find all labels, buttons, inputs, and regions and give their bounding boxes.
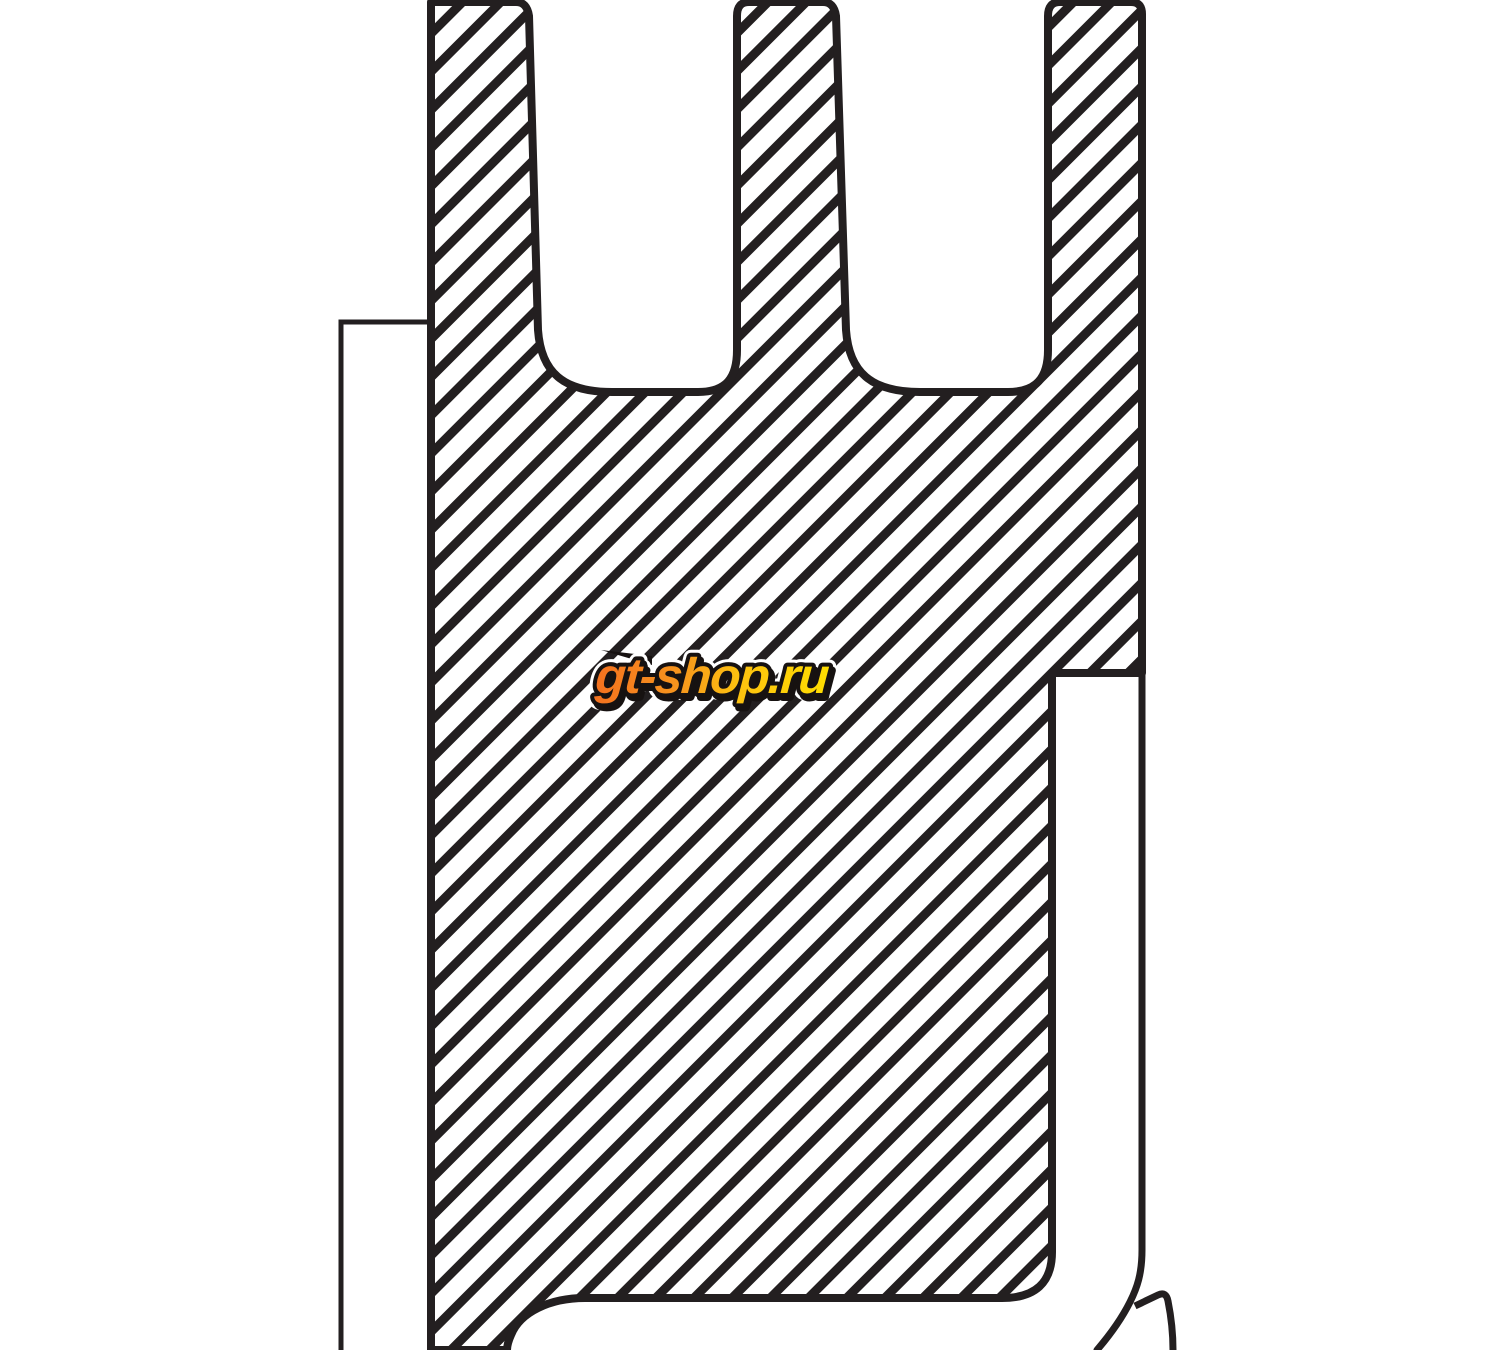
- watermark-text: gt-shop.ru gt-shop.ru gt-shop.ru gt-shop…: [593, 648, 834, 708]
- watermark: gt-shop.ru gt-shop.ru gt-shop.ru gt-shop…: [593, 648, 834, 708]
- seal-cross-section-drawing: gt-shop.ru gt-shop.ru gt-shop.ru gt-shop…: [0, 0, 1500, 1350]
- watermark-text-fill: gt-shop.ru: [593, 648, 831, 704]
- screenshot-root: gt-shop.ru gt-shop.ru gt-shop.ru gt-shop…: [0, 0, 1500, 1350]
